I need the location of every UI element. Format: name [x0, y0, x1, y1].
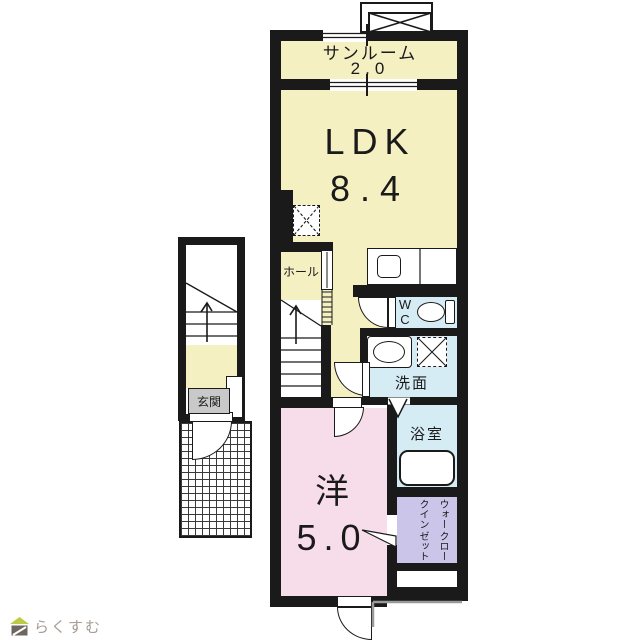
wc-label-c-text: C	[400, 312, 409, 327]
wc-label-w: W	[396, 296, 414, 312]
ldk-size: 8.4	[300, 168, 440, 210]
site-logo: らくすむ	[10, 616, 102, 637]
hall-label: ホール	[279, 263, 323, 279]
room-storage-white	[397, 571, 457, 587]
wic-label-col1: ウォークイン	[412, 499, 452, 531]
western-room-label: 洋	[302, 468, 362, 508]
entry-wall-dot	[237, 364, 243, 370]
room-stairs-upper	[281, 300, 321, 397]
wall-right	[457, 30, 468, 601]
kitchen-sink	[377, 255, 401, 278]
balcony-door-swing	[337, 607, 372, 640]
wall-western-top	[270, 397, 332, 408]
wall-wic-lower	[387, 563, 468, 571]
washer-space	[417, 337, 447, 367]
wall-ldk-stub	[281, 190, 293, 242]
ldk-label: LDK	[300, 121, 440, 163]
wc-label-w-text: W	[399, 297, 411, 312]
toilet-tank	[445, 300, 455, 324]
balcony-door-leaf	[337, 596, 372, 607]
bathroom-label-text: 浴室	[410, 423, 444, 444]
wall-bath-top	[362, 397, 468, 405]
washroom-label-text: 洗面	[395, 372, 429, 393]
ldk-size-text: 8.4	[330, 168, 410, 210]
vanity-sink	[373, 341, 405, 363]
equipment-box-inner	[368, 12, 432, 33]
wic-door-gap	[387, 515, 397, 545]
wic-label-col2: クローゼット	[412, 531, 452, 563]
wall-bath-wic-divider	[387, 487, 468, 497]
sunroom-size-text: 2.0	[351, 59, 390, 79]
bathtub	[399, 450, 455, 486]
western-room-label-text: 洋	[315, 464, 349, 513]
house-logo-icon	[10, 617, 29, 636]
western-room-size: 5.0	[288, 516, 376, 560]
washroom-door-leaf	[362, 362, 370, 397]
logo-text: らくすむ	[34, 616, 102, 637]
western-room-size-text: 5.0	[296, 517, 367, 559]
ldk-label-text: LDK	[324, 121, 415, 163]
wic-label: ウォークイン クローゼット	[411, 499, 453, 563]
wall-left	[270, 30, 281, 607]
wall-bottom-right	[387, 587, 468, 601]
entrance-label-box: 玄関	[188, 388, 230, 414]
floorplan-canvas: 玄関	[0, 0, 640, 640]
window-sunroom-ldk	[330, 79, 417, 91]
toilet-bowl	[417, 302, 445, 322]
entry-stairs-area	[186, 245, 237, 345]
wall-washroom-left	[360, 336, 367, 362]
wc-door-leaf	[388, 297, 396, 328]
wall-stairs-right	[321, 325, 331, 403]
washroom-label: 洗面	[382, 372, 442, 392]
hall-label-text: ホール	[283, 263, 319, 280]
wall-wc-washroom-divider	[360, 328, 457, 336]
wc-label-c: C	[396, 311, 414, 327]
entrance-label: 玄関	[197, 393, 221, 410]
bathroom-label: 浴室	[399, 423, 455, 443]
sunroom-size: 2.0	[330, 60, 410, 78]
sunroom-label: サンルーム	[300, 42, 440, 60]
